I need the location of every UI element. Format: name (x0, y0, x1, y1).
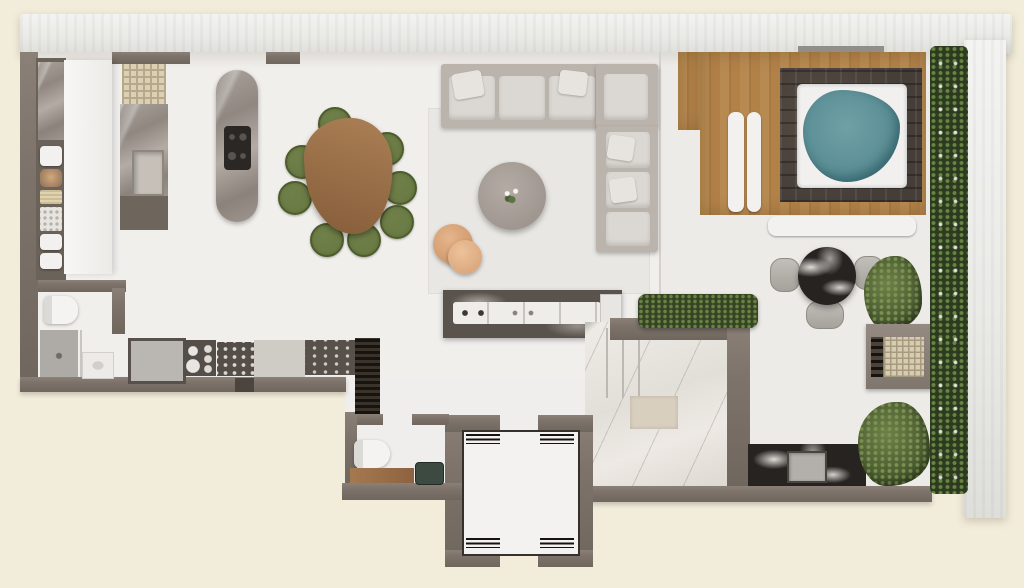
stairs-right-wall (727, 322, 750, 487)
lounger (747, 112, 761, 212)
sofa-corner-section (596, 64, 658, 128)
elevator-rail (466, 538, 500, 548)
powder-room-top-wall-a (357, 414, 383, 425)
stair-landing (630, 396, 678, 429)
refrigerator (128, 338, 186, 384)
pantry-marble-top (38, 62, 64, 140)
vertical-garden (930, 46, 968, 494)
corridor-cabinet (64, 60, 112, 274)
sofa-pillow (451, 70, 485, 101)
wall-pillar-b (266, 52, 300, 64)
outdoor-bar-sink (787, 451, 827, 483)
bistro-chair (770, 258, 800, 292)
cooktop (224, 126, 251, 170)
kitchen-sink (132, 150, 164, 196)
sofa-pillow (558, 69, 589, 96)
pergola-step (678, 52, 702, 130)
sofa-pillow (608, 176, 637, 203)
terrace-bottom-wall (582, 486, 932, 502)
bbq-grill (884, 337, 924, 377)
bathroom-right-wall (112, 288, 125, 334)
towel-stack-1 (40, 234, 62, 250)
towel-stack-2 (40, 253, 62, 269)
bistro-table (798, 247, 856, 305)
lounger (728, 112, 744, 212)
right-exterior-wall (964, 40, 1006, 518)
egg-tray (40, 207, 62, 231)
pantry-white-box (40, 146, 62, 166)
potted-plant (864, 256, 922, 330)
powder-room-top-wall-b (412, 414, 449, 425)
bistro-chair (806, 301, 844, 329)
bbq-handle-rack (871, 337, 883, 377)
glass-wall-line (659, 52, 661, 302)
powder-wood-bench (350, 468, 414, 483)
wall-pillar-a (112, 52, 190, 64)
doorway-floor (254, 340, 305, 377)
wine-cabinet (355, 338, 380, 414)
bread-basket (40, 169, 62, 187)
bar-tray (453, 302, 601, 324)
dining-chair (380, 205, 414, 239)
kitchen-counter-base (120, 196, 168, 230)
powder-room-bottom-wall (342, 483, 462, 500)
side-table-small (448, 240, 482, 274)
shower-floor (40, 330, 78, 377)
sofa-right-section (596, 126, 658, 252)
elevator-rail (466, 434, 500, 444)
vanity-sink (82, 352, 114, 379)
sofa-cushion (499, 76, 545, 120)
kitchen-grill-vent (122, 64, 166, 106)
spice-rack (217, 342, 254, 376)
outdoor-bench (768, 216, 916, 236)
floor-plan-rendering: Top-down 3D architectural rendering of a… (0, 0, 1024, 588)
pantry-tray (40, 190, 62, 204)
sofa-cushion (604, 74, 648, 120)
sofa-pillow (606, 134, 635, 162)
wine-rack (305, 340, 355, 375)
elevator-rail (540, 538, 574, 548)
stair-edge (606, 328, 608, 398)
coffee-table-plant (500, 184, 524, 208)
bathroom-toilet (44, 296, 78, 324)
powder-toilet (354, 440, 390, 468)
powder-stone-sink (415, 462, 444, 485)
elevator-rail (540, 434, 574, 444)
potted-plant (858, 402, 930, 486)
plate-rack (183, 340, 216, 376)
wall-post (235, 378, 254, 392)
sofa-cushion (606, 212, 650, 246)
planter-hedge (638, 294, 758, 328)
